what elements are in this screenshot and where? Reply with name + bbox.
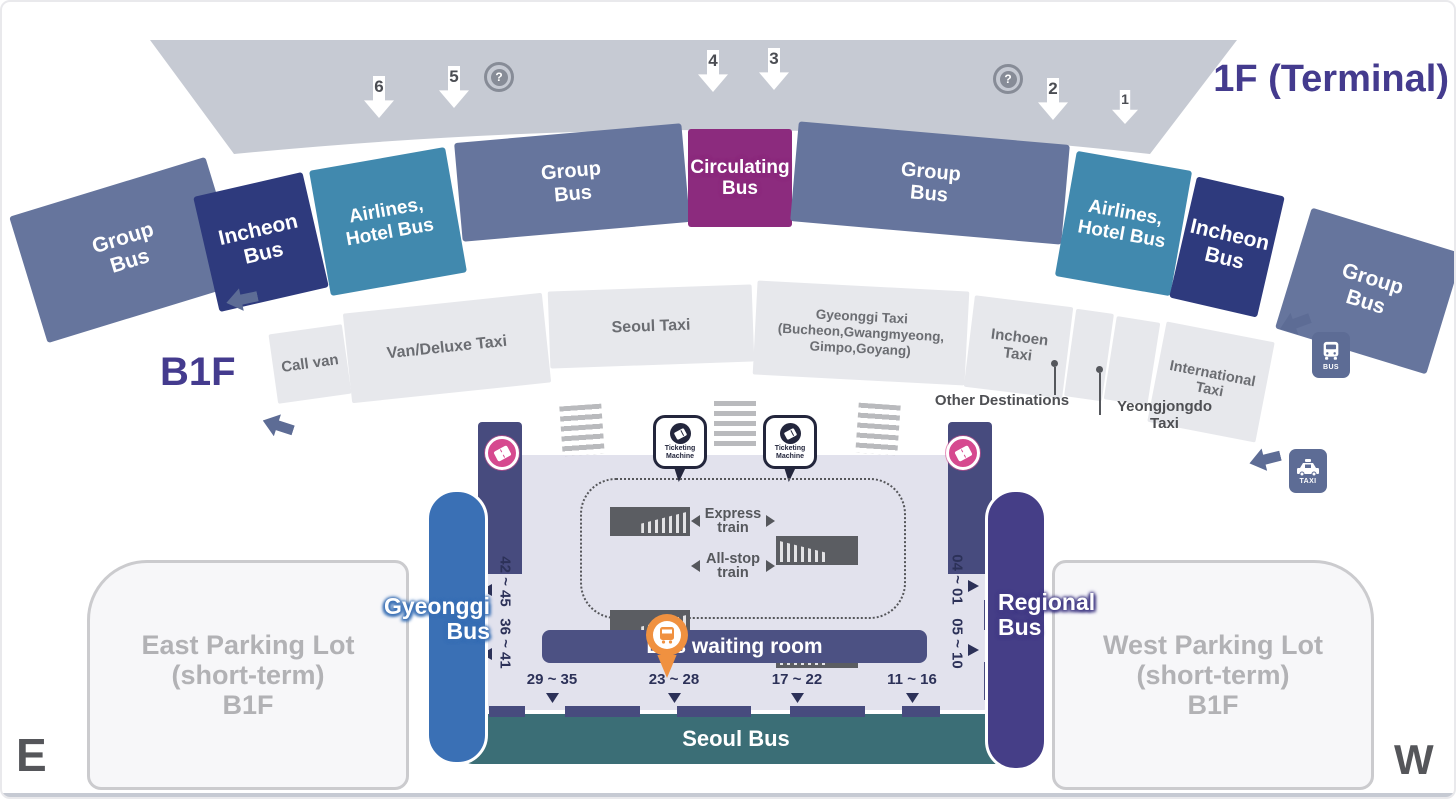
crosswalk [855, 403, 900, 456]
callout-yeongjongdo-taxi: Yeongjongdo Taxi [1102, 398, 1227, 433]
platform-graphic [776, 536, 858, 565]
terminal-gate-6: 6 [364, 76, 394, 118]
location-pin-icon [646, 614, 688, 656]
callout-line [1054, 367, 1056, 395]
bus-zone-group-left: Group Bus [454, 123, 690, 241]
express-train-label: Express train [690, 505, 776, 537]
platform-graphic [610, 507, 690, 536]
terminal-gate-4: 4 [698, 50, 728, 92]
taxi-sign: TAXI [1289, 449, 1327, 493]
bus-zone-circulating: Circulating Bus [688, 129, 792, 227]
bus-sign-label: BUS [1323, 364, 1339, 371]
ticketing-machine-callout: Ticketing Machine [653, 415, 707, 469]
ticket-icon [780, 423, 801, 444]
east-parking-lot: East Parking Lot (short-term) B1F [87, 560, 409, 790]
gate-number: 5 [439, 67, 469, 87]
ticket-badge-icon [485, 436, 519, 470]
right-triangle-icon [766, 515, 775, 527]
platform-edge [902, 706, 940, 717]
help-icon: ? [993, 64, 1023, 94]
bus-icon [657, 625, 677, 645]
platform-edge [489, 706, 525, 717]
callout-dot [1051, 360, 1058, 367]
gyeonggi-bus-label: Gyeonggi Bus [380, 594, 490, 645]
crosswalk [714, 401, 756, 451]
callout-other-destinations: Other Destinations [917, 392, 1087, 409]
callout-dot [1096, 366, 1103, 373]
gate-number: 4 [698, 51, 728, 71]
bus-icon [1320, 340, 1342, 364]
terminal-gate-1: 1 [1112, 90, 1138, 124]
taxi-zone-gyeonggi-taxi: Gyeonggi Taxi (Bucheon,Gwangmyeong, Gimp… [753, 281, 970, 386]
platform-edge [790, 706, 865, 717]
terminal-gate-2: 2 [1038, 78, 1068, 120]
bus-zone-airlines-hotel-right: Airlines, Hotel Bus [1055, 151, 1192, 296]
taxi-zone-seoul-taxi: Seoul Taxi [548, 284, 755, 368]
callout-line [1099, 373, 1101, 415]
title-1f-terminal: 1F (Terminal) [1187, 58, 1449, 101]
taxi-zone-inchoen-taxi: Inchoen Taxi [964, 295, 1073, 398]
stop-range: 17 ~ 22 [766, 671, 828, 688]
stop-range-right: 04 ~ 01 [942, 550, 972, 608]
stop-range-left: 36 ~ 41 [490, 614, 520, 672]
platform-edge [677, 706, 751, 717]
ticket-badge-icon [946, 436, 980, 470]
gate-number: 2 [1038, 79, 1068, 99]
help-icon: ? [484, 62, 514, 92]
stop-range: 11 ~ 16 [881, 671, 943, 688]
platform-edge [565, 706, 640, 717]
all-stop-train-label: All-stop train [690, 550, 776, 582]
left-triangle-icon [691, 560, 700, 572]
gate-number: 3 [759, 49, 789, 69]
taxi-zone-call-van: Call van [268, 324, 351, 404]
stop-range-left: 42 ~ 45 [490, 552, 520, 610]
right-triangle-icon [766, 560, 775, 572]
terminal-gate-3: 3 [759, 48, 789, 90]
bus-sign: BUS [1312, 332, 1350, 378]
ticketing-machine-callout: Ticketing Machine [763, 415, 817, 469]
taxi-icon [1295, 458, 1321, 478]
label-east: E [16, 728, 47, 782]
bus-waiting-room: Bus waiting room [542, 630, 927, 663]
stop-range: 29 ~ 35 [521, 671, 583, 688]
label-b1f: B1F [160, 350, 236, 395]
label-west: W [1394, 736, 1434, 784]
taxi-sign-label: TAXI [1299, 478, 1316, 485]
terminal-gate-5: 5 [439, 66, 469, 108]
ticket-icon [670, 423, 691, 444]
gate-number: 1 [1112, 91, 1138, 107]
bottom-edge [2, 793, 1456, 799]
stop-range-right: 05 ~ 10 [942, 614, 972, 672]
bus-zone-airlines-hotel-left: Airlines, Hotel Bus [309, 147, 467, 296]
left-triangle-icon [691, 515, 700, 527]
stop-range: 23 ~ 28 [643, 671, 705, 688]
crosswalk [559, 404, 604, 457]
gate-number: 6 [364, 77, 394, 97]
seoul-bus-zone: Seoul Bus [457, 710, 1015, 768]
airport-transit-center-map: 1F (Terminal) B1 (Transit Center) B1F E … [0, 0, 1456, 799]
regional-bus-label: Regional Bus [998, 590, 1108, 641]
